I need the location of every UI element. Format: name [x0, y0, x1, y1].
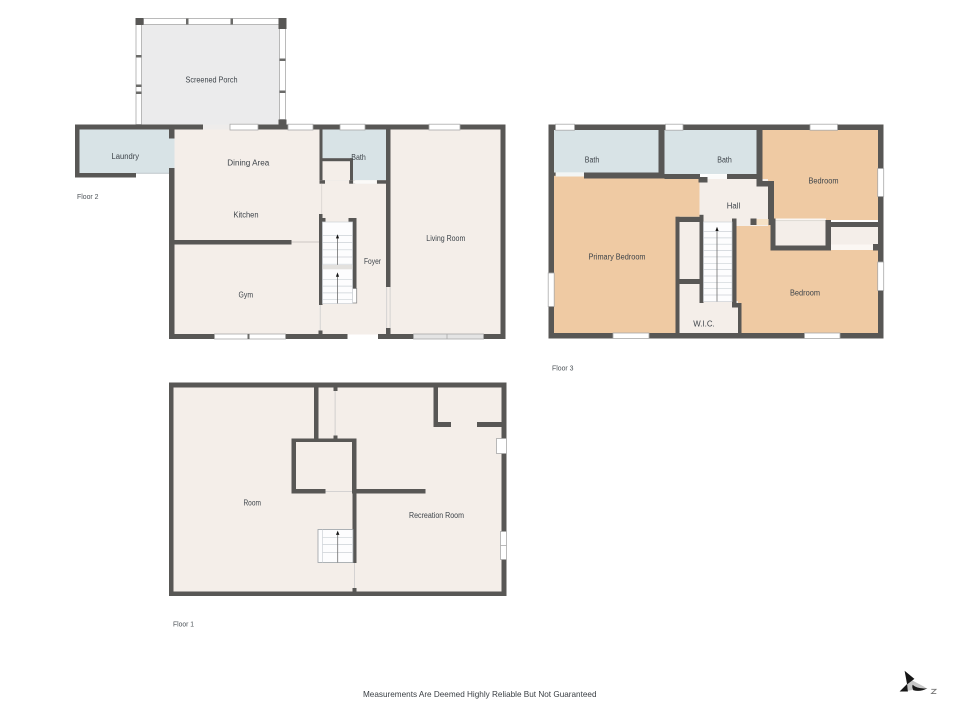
svg-text:Floor 1: Floor 1 [173, 622, 194, 629]
svg-text:Hall: Hall [727, 202, 741, 211]
svg-text:Living Room: Living Room [426, 234, 465, 243]
svg-text:Bath: Bath [717, 156, 732, 165]
svg-text:Bath: Bath [351, 153, 366, 162]
svg-text:Screened Porch: Screened Porch [186, 76, 238, 85]
svg-text:Bedroom: Bedroom [790, 289, 820, 298]
svg-text:Room: Room [243, 499, 261, 508]
svg-text:Recreation Room: Recreation Room [409, 511, 464, 520]
svg-text:Floor 3: Floor 3 [552, 366, 574, 373]
svg-text:Kitchen: Kitchen [234, 211, 259, 220]
svg-text:Floor 2: Floor 2 [77, 194, 99, 201]
svg-text:Dining Area: Dining Area [227, 159, 270, 168]
svg-text:W.I.C.: W.I.C. [693, 320, 715, 329]
svg-text:Foyer: Foyer [364, 257, 381, 266]
svg-text:Laundry: Laundry [112, 152, 140, 161]
svg-text:Bedroom: Bedroom [809, 177, 839, 186]
svg-text:Gym: Gym [239, 291, 254, 300]
svg-text:Bath: Bath [585, 156, 600, 165]
svg-text:Measurements Are Deemed Highly: Measurements Are Deemed Highly Reliable … [363, 690, 597, 699]
svg-text:Primary Bedroom: Primary Bedroom [589, 253, 646, 262]
